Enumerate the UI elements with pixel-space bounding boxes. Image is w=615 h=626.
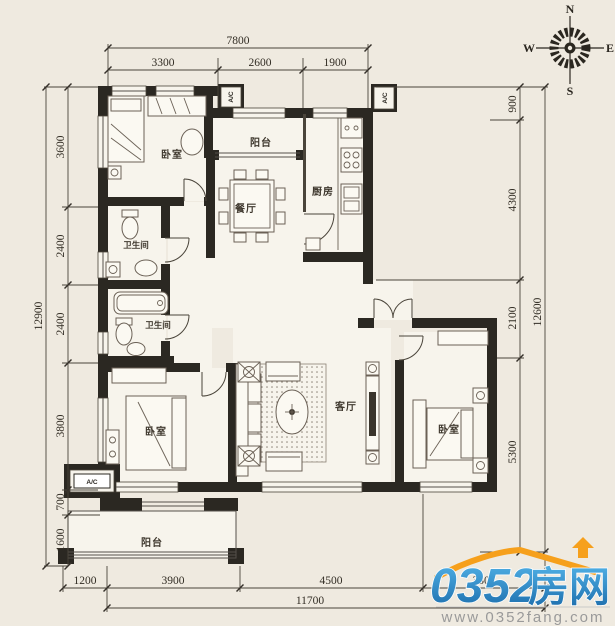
floor-plan-canvas: A/C A/C A/C	[0, 0, 615, 626]
dim-bottom-total: 11700	[296, 595, 325, 607]
room-balcony-bottom	[68, 511, 236, 558]
logo-brand-number: 0352	[430, 560, 537, 613]
compass-w: W	[523, 41, 535, 55]
label-bedroom-bottom-left: 卧室	[145, 425, 167, 438]
room-hall	[211, 258, 363, 328]
room-balcony-top	[211, 114, 307, 158]
ac-label-bottom-left: A/C	[86, 479, 98, 486]
label-bathroom-upper: 卫生间	[123, 240, 149, 251]
dim-bottom-seg3: 4500	[320, 575, 343, 587]
dim-right-seg1: 900	[507, 95, 519, 113]
label-living: 客厅	[334, 400, 357, 413]
label-dining: 餐厅	[234, 202, 257, 215]
dim-left-seg3: 2400	[55, 312, 67, 335]
compass-e: E	[606, 41, 614, 55]
logo-url: www.0352fang.com	[441, 609, 605, 626]
dim-left-total: 12900	[33, 301, 45, 330]
dim-right-seg4: 5300	[507, 440, 519, 463]
dim-left-seg6: 1600	[55, 528, 67, 551]
label-bathroom-lower: 卫生间	[145, 320, 171, 331]
compass-s: S	[567, 84, 574, 98]
dim-top-seg1: 3300	[152, 57, 175, 69]
tv	[369, 392, 376, 436]
label-kitchen: 厨房	[312, 185, 334, 198]
dim-top-total: 7800	[227, 35, 250, 47]
dim-right-total: 12600	[532, 297, 544, 326]
dim-bottom-seg2: 3900	[162, 575, 185, 587]
dim-left-seg2: 2400	[55, 234, 67, 257]
dim-right-seg3: 2100	[507, 306, 519, 329]
dim-top-seg2: 2600	[249, 57, 272, 69]
dim-bottom-seg1: 1200	[74, 575, 97, 587]
dim-left-seg1: 3600	[55, 135, 67, 158]
compass-n: N	[566, 2, 575, 16]
room-corridor	[168, 202, 212, 368]
dim-top-seg3: 1900	[324, 57, 347, 69]
label-balcony-top: 阳台	[250, 136, 272, 149]
label-balcony-bottom: 阳台	[141, 536, 163, 549]
logo-brand-name: 房网	[528, 563, 610, 611]
ac-label-top-left: A/C	[228, 91, 235, 103]
label-bedroom-top-left: 卧室	[161, 148, 183, 161]
label-bedroom-bottom-right: 卧室	[438, 423, 460, 436]
dim-right-seg2: 4300	[507, 188, 519, 211]
dim-left-seg5: 700	[55, 493, 67, 511]
kitchen-partition	[303, 114, 306, 212]
ac-label-top-right: A/C	[382, 92, 389, 104]
dim-left-seg4: 3800	[55, 414, 67, 437]
